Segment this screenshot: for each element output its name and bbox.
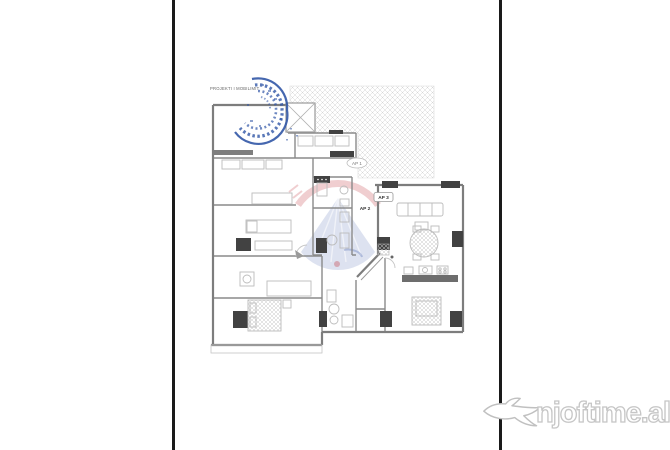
floor-plan-drawing: PROJEKTI I MOBILIMIT	[0, 0, 670, 450]
ap3-label: AP 3	[378, 195, 389, 201]
watermark-text: njoftime.al	[536, 399, 670, 428]
njoftime-watermark: njoftime.al	[482, 392, 670, 434]
entry-mat	[378, 244, 389, 255]
scanned-floor-plan-page: PROJEKTI I MOBILIMIT	[0, 0, 670, 450]
fish-icon	[482, 394, 542, 432]
balcony-rail	[211, 345, 322, 353]
ap2-label: AP 2	[360, 206, 371, 212]
ap1-label: AP 1	[352, 161, 362, 166]
elevator-shaft	[286, 103, 315, 132]
logo-emblem-watermark	[289, 184, 378, 270]
plan-title: PROJEKTI I MOBILIMIT	[210, 86, 260, 91]
door-pivot-dot	[391, 256, 394, 259]
